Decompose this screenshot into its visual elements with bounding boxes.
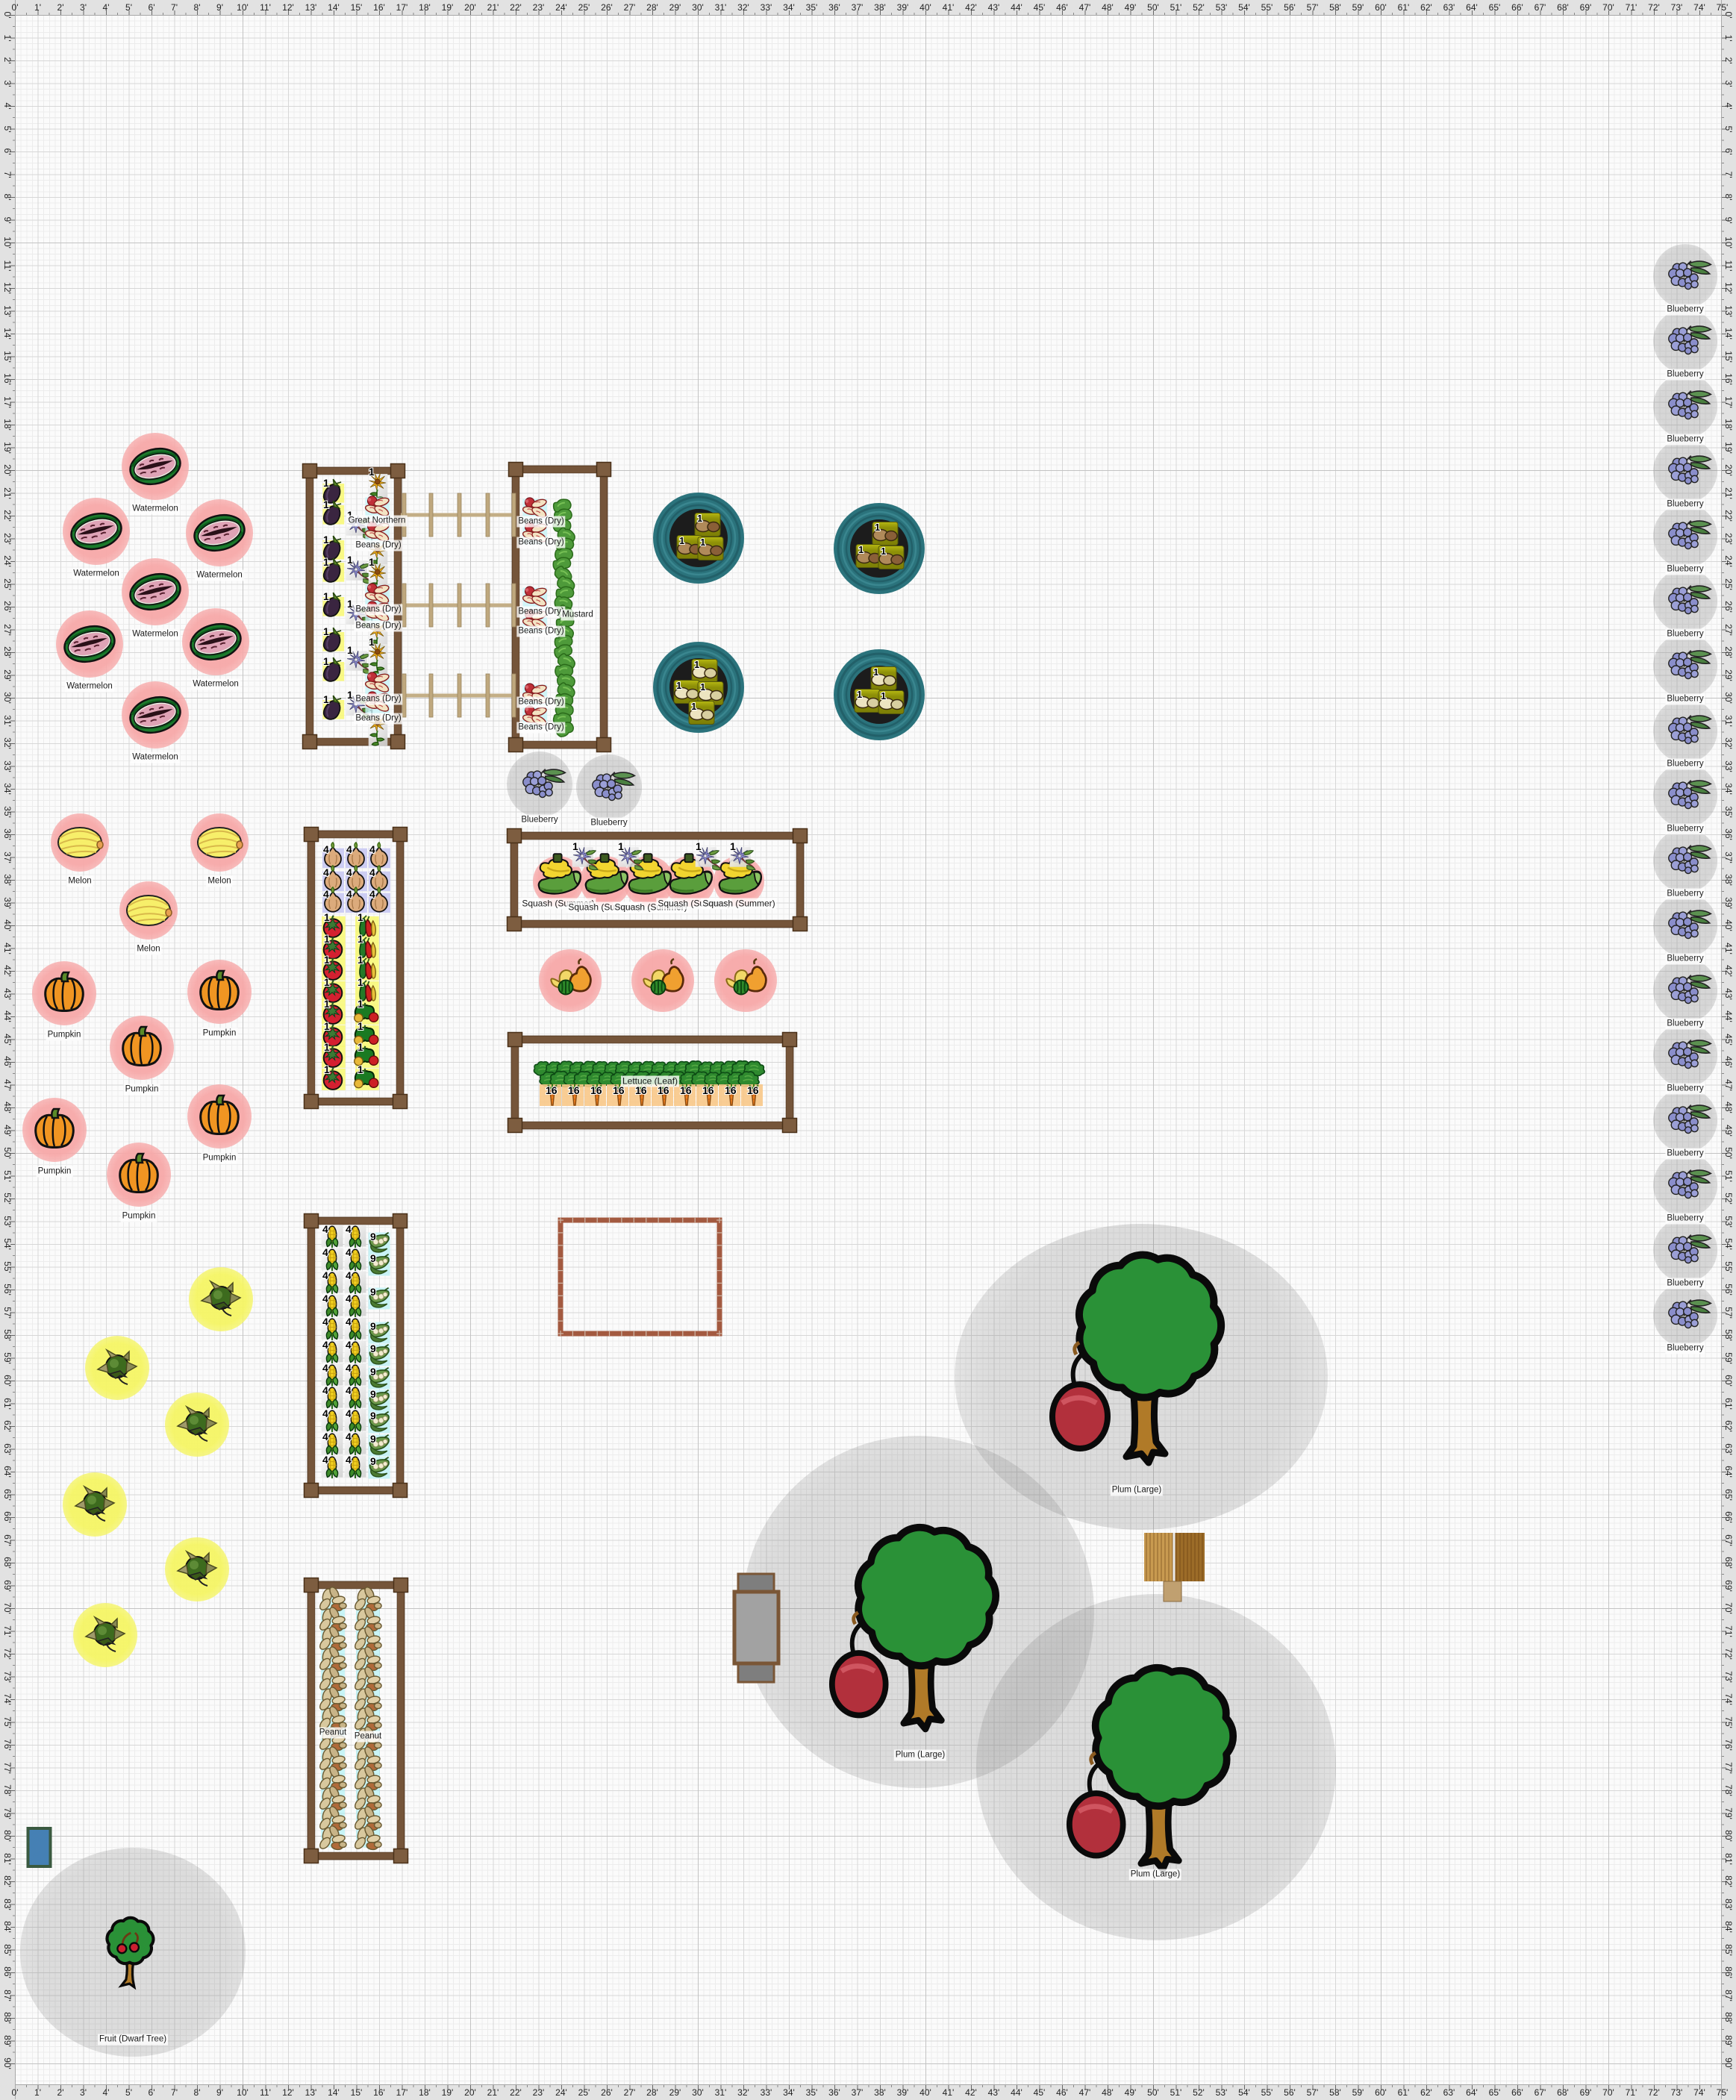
svg-text:4: 4 <box>323 843 329 855</box>
svg-text:4: 4 <box>346 1246 352 1258</box>
svg-text:1: 1 <box>357 1020 363 1032</box>
svg-text:16: 16 <box>747 1084 759 1096</box>
svg-text:4: 4 <box>346 1431 352 1443</box>
svg-text:4: 4 <box>369 888 375 900</box>
svg-text:1: 1 <box>694 659 699 670</box>
svg-text:9: 9 <box>370 1410 376 1422</box>
svg-text:1: 1 <box>881 690 886 701</box>
svg-text:1: 1 <box>730 840 736 852</box>
svg-text:4: 4 <box>369 866 375 878</box>
svg-text:1: 1 <box>357 911 363 923</box>
svg-text:4: 4 <box>322 1362 328 1374</box>
svg-text:1: 1 <box>324 933 330 945</box>
svg-text:4: 4 <box>323 888 329 900</box>
svg-text:1: 1 <box>676 680 681 691</box>
svg-text:1: 1 <box>858 544 864 555</box>
svg-text:4: 4 <box>322 1339 328 1351</box>
svg-text:1: 1 <box>357 1041 363 1053</box>
svg-text:1: 1 <box>700 681 705 693</box>
svg-text:9: 9 <box>370 1231 376 1243</box>
svg-text:1: 1 <box>618 840 624 852</box>
svg-text:16: 16 <box>568 1084 580 1096</box>
svg-text:4: 4 <box>346 866 352 878</box>
svg-text:4: 4 <box>346 1407 352 1419</box>
svg-text:9: 9 <box>370 1286 376 1298</box>
svg-text:1: 1 <box>857 689 862 700</box>
svg-text:1: 1 <box>357 954 363 966</box>
svg-text:4: 4 <box>346 1362 352 1374</box>
svg-text:1: 1 <box>357 1063 363 1075</box>
svg-text:1: 1 <box>323 655 329 667</box>
svg-text:16: 16 <box>590 1084 602 1096</box>
svg-text:1: 1 <box>323 625 329 637</box>
svg-text:1: 1 <box>347 644 353 656</box>
svg-text:1: 1 <box>875 522 880 533</box>
svg-text:1: 1 <box>324 1041 330 1053</box>
svg-text:16: 16 <box>546 1084 558 1096</box>
svg-text:1: 1 <box>347 689 353 701</box>
svg-text:1: 1 <box>357 976 363 988</box>
svg-text:4: 4 <box>322 1269 328 1281</box>
svg-text:16: 16 <box>680 1084 692 1096</box>
svg-text:1: 1 <box>696 840 702 852</box>
svg-text:4: 4 <box>346 1223 352 1235</box>
svg-text:1: 1 <box>347 598 353 610</box>
svg-text:9: 9 <box>370 1252 376 1264</box>
svg-text:1: 1 <box>323 590 329 602</box>
svg-text:1: 1 <box>357 933 363 945</box>
svg-text:4: 4 <box>346 1269 352 1281</box>
svg-text:1: 1 <box>323 499 329 510</box>
svg-text:4: 4 <box>346 1384 352 1396</box>
svg-text:4: 4 <box>346 1293 352 1304</box>
svg-text:4: 4 <box>322 1407 328 1419</box>
svg-text:1: 1 <box>369 556 375 568</box>
svg-text:4: 4 <box>346 1339 352 1351</box>
svg-text:4: 4 <box>346 1454 352 1466</box>
svg-text:16: 16 <box>702 1084 714 1096</box>
svg-text:1: 1 <box>323 693 329 705</box>
svg-text:4: 4 <box>323 866 329 878</box>
svg-text:1: 1 <box>697 513 702 524</box>
svg-text:1: 1 <box>324 1063 330 1075</box>
svg-text:9: 9 <box>370 1343 376 1354</box>
svg-text:1: 1 <box>324 911 330 923</box>
svg-text:9: 9 <box>370 1433 376 1445</box>
svg-text:4: 4 <box>322 1316 328 1328</box>
svg-text:1: 1 <box>700 537 705 548</box>
svg-text:4: 4 <box>322 1431 328 1443</box>
svg-text:9: 9 <box>370 1388 376 1400</box>
svg-text:1: 1 <box>347 554 353 566</box>
svg-text:1: 1 <box>324 998 330 1010</box>
svg-text:4: 4 <box>322 1384 328 1396</box>
svg-text:1: 1 <box>323 477 329 489</box>
svg-text:1: 1 <box>357 998 363 1010</box>
svg-text:4: 4 <box>322 1223 328 1235</box>
svg-text:4: 4 <box>322 1454 328 1466</box>
svg-text:4: 4 <box>369 843 375 855</box>
svg-text:4: 4 <box>322 1246 328 1258</box>
svg-text:1: 1 <box>873 666 878 678</box>
svg-text:4: 4 <box>322 1293 328 1304</box>
svg-text:1: 1 <box>572 840 578 852</box>
svg-text:4: 4 <box>346 888 352 900</box>
svg-text:1: 1 <box>323 534 329 546</box>
svg-text:9: 9 <box>370 1455 376 1467</box>
svg-text:1: 1 <box>881 546 886 557</box>
svg-text:1: 1 <box>369 636 375 648</box>
svg-text:1: 1 <box>324 954 330 966</box>
svg-text:1: 1 <box>324 976 330 988</box>
svg-text:1: 1 <box>691 701 696 712</box>
svg-text:9: 9 <box>370 1366 376 1378</box>
svg-text:1: 1 <box>324 1020 330 1032</box>
svg-text:16: 16 <box>725 1084 737 1096</box>
svg-text:4: 4 <box>346 1316 352 1328</box>
svg-text:1: 1 <box>679 535 684 546</box>
svg-text:4: 4 <box>346 843 352 855</box>
svg-text:1: 1 <box>323 556 329 568</box>
svg-text:1: 1 <box>369 466 375 478</box>
svg-text:9: 9 <box>370 1320 376 1332</box>
